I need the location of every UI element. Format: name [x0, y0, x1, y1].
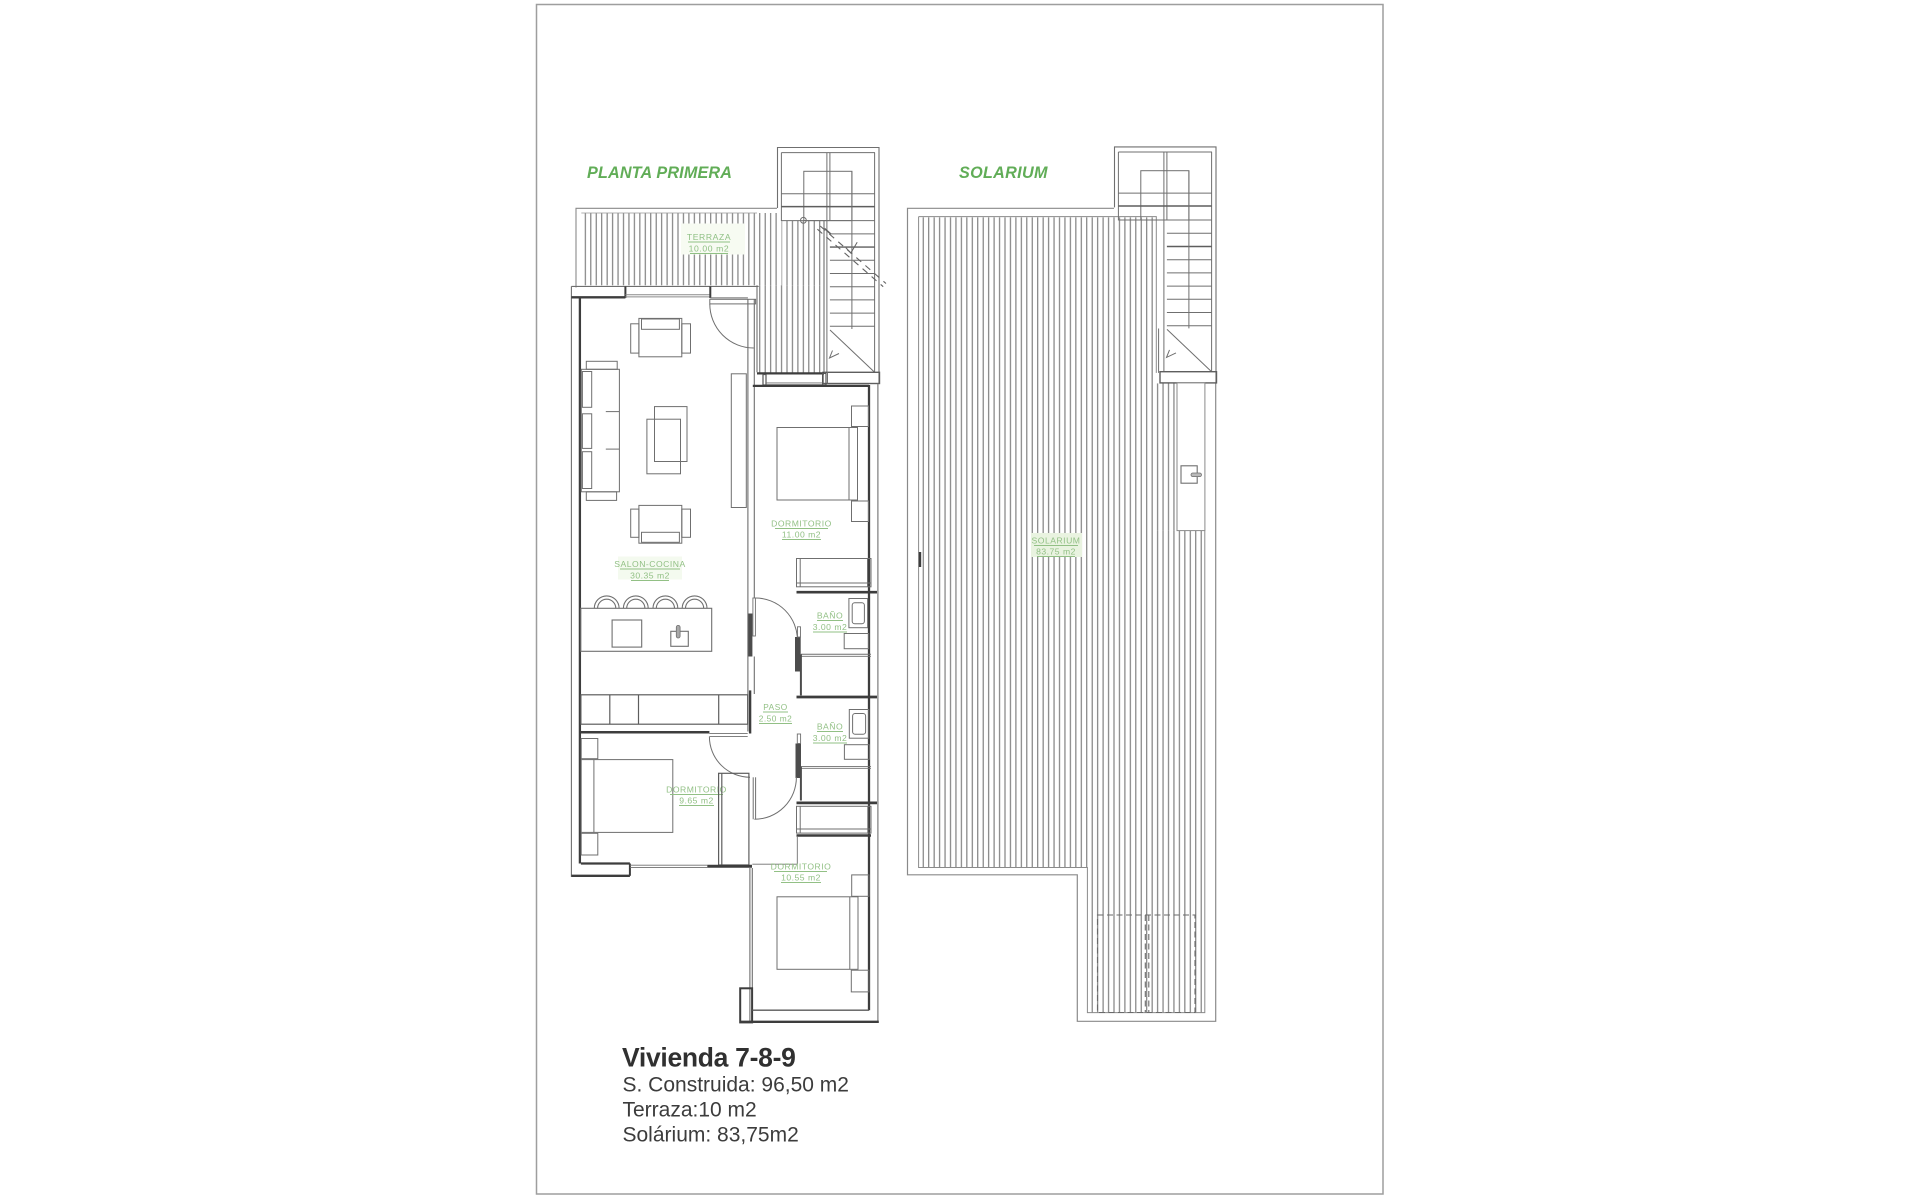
- svg-text:30.35 m2: 30.35 m2: [630, 571, 670, 581]
- svg-text:DORMITORIO: DORMITORIO: [666, 785, 727, 795]
- svg-text:DORMITORIO: DORMITORIO: [771, 519, 832, 529]
- svg-text:Solárium: 83,75m2: Solárium: 83,75m2: [623, 1124, 799, 1147]
- svg-text:SOLARIUM: SOLARIUM: [1032, 536, 1081, 546]
- svg-text:10.55 m2: 10.55 m2: [781, 873, 821, 883]
- svg-text:10.00 m2: 10.00 m2: [689, 244, 730, 254]
- svg-text:DORMITORIO: DORMITORIO: [771, 862, 832, 872]
- svg-text:83.75 m2: 83.75 m2: [1036, 547, 1076, 557]
- svg-text:3.00 m2: 3.00 m2: [813, 622, 848, 632]
- svg-text:BAÑO: BAÑO: [817, 722, 843, 732]
- svg-text:SALON-COCINA: SALON-COCINA: [614, 559, 685, 569]
- svg-text:BAÑO: BAÑO: [817, 611, 843, 621]
- svg-text:3.00 m2: 3.00 m2: [813, 733, 848, 743]
- svg-text:S. Construida: 96,50 m2: S. Construida: 96,50 m2: [623, 1074, 849, 1097]
- svg-text:11.00 m2: 11.00 m2: [782, 530, 821, 540]
- svg-text:Terraza:10 m2: Terraza:10 m2: [623, 1099, 757, 1122]
- svg-text:9.65 m2: 9.65 m2: [679, 796, 714, 806]
- svg-text:PLANTA PRIMERA: PLANTA PRIMERA: [587, 164, 732, 182]
- svg-text:SOLARIUM: SOLARIUM: [959, 164, 1048, 182]
- svg-text:2.50 m2: 2.50 m2: [759, 714, 792, 724]
- svg-text:Vivienda 7-8-9: Vivienda 7-8-9: [622, 1043, 796, 1073]
- svg-text:PASO: PASO: [763, 702, 787, 712]
- svg-text:TERRAZA: TERRAZA: [687, 232, 731, 242]
